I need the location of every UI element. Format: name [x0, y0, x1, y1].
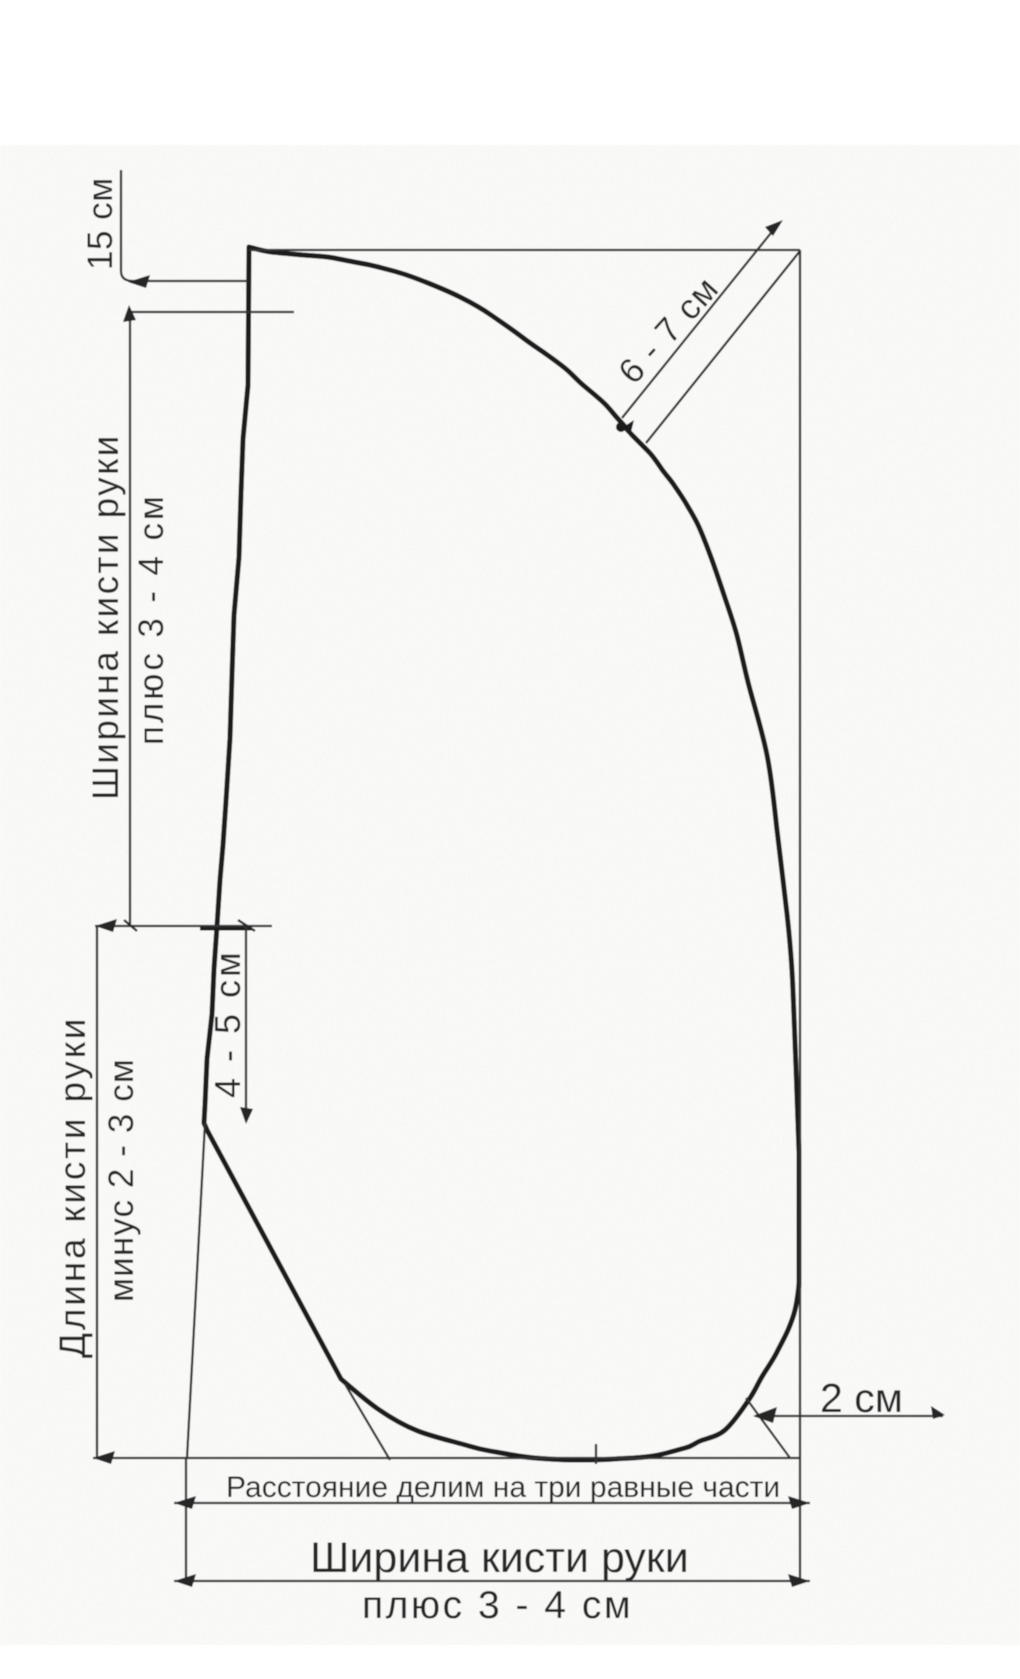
- svg-text:Длина кисти руки: Длина кисти руки: [52, 1016, 93, 1358]
- svg-text:минус 2 - 3 см: минус 2 - 3 см: [102, 1058, 141, 1302]
- svg-text:15 см: 15 см: [81, 177, 120, 270]
- svg-text:Расстояние делим на три равные: Расстояние делим на три равные части: [226, 1471, 780, 1504]
- svg-text:плюс 3 - 4 см: плюс 3 - 4 см: [362, 1584, 633, 1627]
- svg-text:4 - 5 см: 4 - 5 см: [207, 949, 248, 1098]
- svg-text:плюс 3 - 4 см: плюс 3 - 4 см: [132, 493, 171, 745]
- svg-text:Ширина кисти руки: Ширина кисти руки: [85, 433, 126, 800]
- svg-text:2 см: 2 см: [820, 1375, 903, 1421]
- svg-text:Ширина кисти руки: Ширина кисти руки: [310, 1534, 689, 1582]
